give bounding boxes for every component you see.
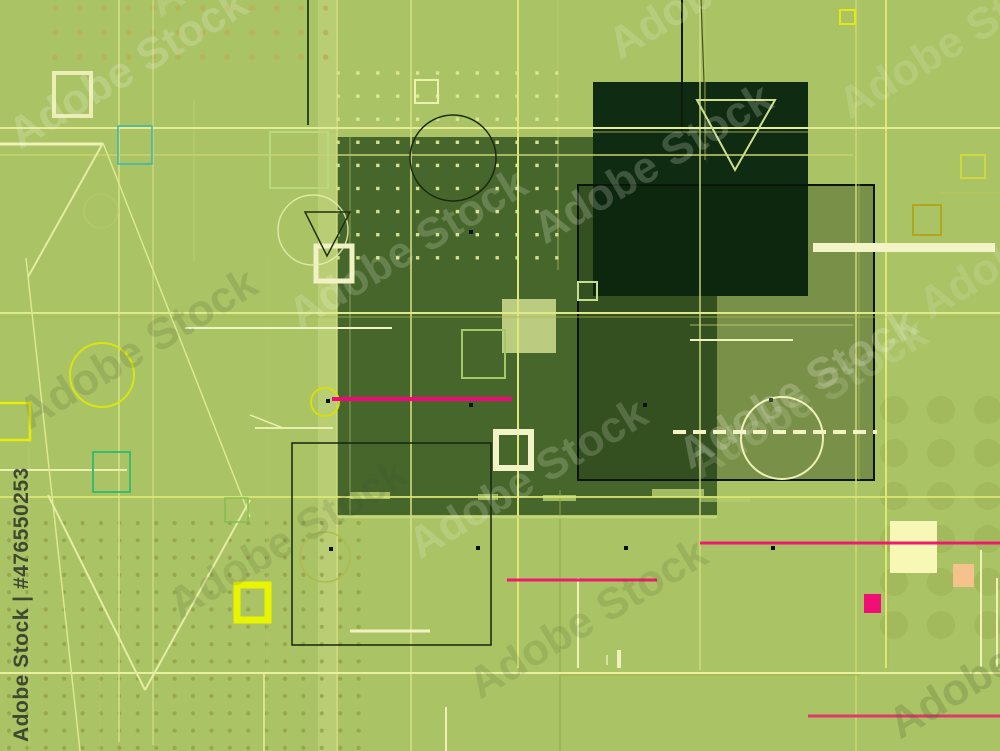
bead-grid-bottom-left-dot (246, 607, 250, 611)
bead-grid-top-left-dot (101, 30, 107, 36)
adobe-stock-ghost-watermark: Adobe Stock (10, 258, 266, 439)
bead-grid-bottom-left-dot (209, 746, 213, 750)
fine-dot-grid-dot (376, 164, 379, 167)
bead-grid-bottom-left-dot (81, 659, 85, 663)
faint-blob-grid-dot (880, 439, 908, 467)
bead-grid-bottom-left-dot (154, 677, 158, 681)
spring-green-square (93, 452, 130, 492)
bead-grid-bottom-left-dot (173, 677, 177, 681)
bead-grid-bottom-left-dot (320, 625, 324, 629)
bead-grid-bottom-left-dot (191, 694, 195, 698)
bead-grid-bottom-left-dot (81, 556, 85, 560)
bead-grid-bottom-left-dot (283, 590, 287, 594)
bead-grid-bottom-left-dot (191, 642, 195, 646)
fine-dot-grid-dot (476, 71, 479, 74)
bead-grid-bottom-left-dot (283, 677, 287, 681)
black-dot (326, 399, 330, 403)
bead-grid-bottom-left-dot (228, 729, 232, 733)
faint-blob-grid-dot (974, 525, 1000, 553)
bead-grid-bottom-left-dot (99, 573, 103, 577)
fine-dot-grid-dot (535, 118, 538, 121)
bead-grid-top-left-dot (298, 5, 304, 11)
bead-grid-bottom-left-dot (81, 694, 85, 698)
bead-grid-bottom-left-dot (357, 711, 361, 715)
bead-grid-bottom-left-dot (154, 642, 158, 646)
bead-grid-bottom-left-dot (301, 694, 305, 698)
bead-grid-bottom-left-dot (7, 746, 11, 750)
bead-grid-bottom-left-dot (338, 556, 342, 560)
bead-grid-bottom-left-dot (154, 521, 158, 525)
bead-grid-bottom-left-dot (44, 521, 48, 525)
bead-grid-bottom-left-dot (154, 746, 158, 750)
bead-grid-bottom-left-dot (209, 538, 213, 542)
bead-grid-bottom-left-dot (357, 607, 361, 611)
bead-grid-bottom-left-dot (246, 729, 250, 733)
faint-blob-grid-dot (927, 482, 955, 510)
bead-grid-bottom-left-dot (44, 573, 48, 577)
bead-grid-top-left-dot (224, 54, 230, 60)
bead-grid-bottom-left-dot (357, 694, 361, 698)
olive-square-outline (913, 205, 941, 235)
pale-vertical-band (318, 0, 338, 751)
bead-grid-top-left-dot (274, 5, 280, 11)
yellowgreen-square-outline (961, 155, 985, 178)
adobe-stock-ghost-watermark: Adobe Stock (910, 148, 1000, 329)
bead-grid-bottom-left-dot (209, 625, 213, 629)
fine-dot-grid-dot (436, 164, 439, 167)
fine-dot-grid-dot (416, 71, 419, 74)
bead-grid-bottom-left-dot (246, 711, 250, 715)
bead-grid-bottom-left-dot (320, 711, 324, 715)
fine-dot-grid-dot (535, 141, 538, 144)
fine-dot-grid-dot (535, 71, 538, 74)
adobe-stock-ghost-watermark: Adobe Stock (460, 528, 716, 709)
fine-dot-grid-dot (456, 118, 459, 121)
bead-grid-bottom-left-dot (338, 590, 342, 594)
bead-grid-bottom-left-dot (136, 711, 140, 715)
bead-grid-bottom-left-dot (136, 556, 140, 560)
bead-grid-bottom-left-dot (320, 590, 324, 594)
bead-grid-bottom-left-dot (44, 659, 48, 663)
bead-grid-bottom-left-dot (173, 746, 177, 750)
bead-grid-bottom-left-dot (320, 694, 324, 698)
faint-blob-grid-dot (880, 482, 908, 510)
fine-dot-grid-dot (456, 164, 459, 167)
bead-grid-top-left-dot (52, 54, 58, 60)
fine-dot-grid-dot (356, 233, 359, 236)
bead-grid-bottom-left-dot (320, 573, 324, 577)
fine-dot-grid-dot (376, 118, 379, 121)
bead-grid-bottom-left-dot (246, 694, 250, 698)
bead-grid-bottom-left-dot (191, 521, 195, 525)
bead-grid-bottom-left-dot (246, 659, 250, 663)
bead-grid-bottom-left-dot (136, 538, 140, 542)
bead-grid-top-left-dot (200, 54, 206, 60)
fine-dot-grid-dot (416, 164, 419, 167)
bead-grid-top-left-dot (77, 5, 83, 11)
bead-grid-bottom-left-dot (62, 659, 66, 663)
triangle-left-side (28, 143, 103, 277)
fine-dot-grid-dot (476, 256, 479, 259)
faint-blob-grid-dot (927, 396, 955, 424)
bead-grid-bottom-left-dot (62, 677, 66, 681)
bead-grid-bottom-left-dot (246, 625, 250, 629)
bead-grid-bottom-left-dot (301, 590, 305, 594)
bead-grid-bottom-left-dot (191, 659, 195, 663)
fine-dot-grid-dot (416, 141, 419, 144)
bead-grid-bottom-left-dot (81, 538, 85, 542)
bead-grid-bottom-left-dot (136, 642, 140, 646)
bead-grid-bottom-left-dot (173, 729, 177, 733)
fine-dot-grid-dot (396, 94, 399, 97)
fine-dot-grid-dot (456, 71, 459, 74)
bead-grid-bottom-left-dot (136, 625, 140, 629)
black-dot (624, 546, 628, 550)
bead-grid-bottom-left-dot (62, 642, 66, 646)
bead-grid-bottom-left-dot (301, 607, 305, 611)
bead-grid-bottom-left-dot (228, 659, 232, 663)
bead-grid-bottom-left-dot (62, 711, 66, 715)
bead-grid-bottom-left-dot (136, 521, 140, 525)
bead-grid-bottom-left-dot (209, 729, 213, 733)
bead-grid-bottom-left-dot (44, 642, 48, 646)
bead-grid-top-left-dot (77, 30, 83, 36)
cream-filled-square (890, 521, 937, 573)
bead-grid-bottom-left-dot (228, 625, 232, 629)
bead-grid-top-left-dot (249, 5, 255, 11)
fine-dot-grid-dot (356, 210, 359, 213)
peach-square (953, 564, 974, 587)
bead-grid-bottom-left-dot (209, 521, 213, 525)
bead-grid-bottom-left-dot (265, 746, 269, 750)
bead-grid-bottom-left-dot (320, 746, 324, 750)
adobe-stock-ghost-watermark: Adobe Stock (600, 0, 856, 69)
smudge (652, 489, 704, 497)
fine-dot-grid-dot (356, 164, 359, 167)
black-dot (476, 546, 480, 550)
bead-grid-bottom-left-dot (44, 677, 48, 681)
fine-dot-grid-dot (396, 187, 399, 190)
fine-dot-grid-dot (476, 164, 479, 167)
fine-dot-grid-dot (376, 94, 379, 97)
bead-grid-bottom-left-dot (44, 711, 48, 715)
bead-grid-bottom-left-dot (99, 590, 103, 594)
bead-grid-bottom-left-dot (117, 746, 121, 750)
bead-grid-top-left-dot (298, 30, 304, 36)
bead-grid-bottom-left-dot (338, 729, 342, 733)
bead-grid-bottom-left-dot (301, 746, 305, 750)
fine-dot-grid-dot (496, 256, 499, 259)
bead-grid-bottom-left-dot (62, 538, 66, 542)
bead-grid-bottom-left-dot (154, 711, 158, 715)
faint-blob-grid-dot (927, 611, 955, 639)
bead-grid-bottom-left-dot (338, 625, 342, 629)
bead-grid-bottom-left-dot (301, 729, 305, 733)
faint-blob-grid-dot (974, 482, 1000, 510)
bead-grid-top-left-dot (249, 54, 255, 60)
fine-dot-grid-dot (496, 141, 499, 144)
bead-grid-bottom-left-dot (173, 642, 177, 646)
faint-blob-grid-dot (974, 439, 1000, 467)
fine-dot-grid-dot (396, 164, 399, 167)
bead-grid-bottom-left-dot (62, 573, 66, 577)
bead-grid-top-left-dot (323, 5, 329, 11)
fine-dot-grid-dot (376, 233, 379, 236)
bead-grid-bottom-left-dot (81, 521, 85, 525)
bead-grid-bottom-left-dot (62, 694, 66, 698)
bead-grid-bottom-left-dot (44, 590, 48, 594)
fine-dot-grid-dot (396, 210, 399, 213)
fine-dot-grid-dot (535, 187, 538, 190)
bead-grid-bottom-left-dot (191, 746, 195, 750)
bead-grid-top-left-dot (126, 30, 132, 36)
abstract-geometric-art: Adobe StockAdobe StockAdobe StockAdobe S… (0, 0, 1000, 751)
fine-dot-grid-dot (535, 94, 538, 97)
bead-grid-bottom-left-dot (99, 556, 103, 560)
bead-grid-bottom-left-dot (338, 711, 342, 715)
bead-grid-bottom-left-dot (246, 746, 250, 750)
bead-grid-bottom-left-dot (228, 711, 232, 715)
bead-grid-bottom-left-dot (283, 746, 287, 750)
fine-dot-grid-dot (376, 141, 379, 144)
black-dot (771, 546, 775, 550)
bead-grid-bottom-left-dot (228, 677, 232, 681)
fine-dot-grid-dot (376, 187, 379, 190)
bead-grid-bottom-left-dot (357, 538, 361, 542)
bead-grid-bottom-left-dot (173, 538, 177, 542)
bead-grid-bottom-left-dot (283, 573, 287, 577)
bead-grid-top-left-dot (77, 54, 83, 60)
bead-grid-bottom-left-dot (209, 677, 213, 681)
bead-grid-bottom-left-dot (62, 746, 66, 750)
bead-grid-bottom-left-dot (357, 746, 361, 750)
yellow-square-outline-topright (840, 10, 855, 24)
bead-grid-bottom-left-dot (357, 556, 361, 560)
bead-grid-bottom-left-dot (283, 694, 287, 698)
fine-dot-grid-dot (436, 141, 439, 144)
bead-grid-bottom-left-dot (357, 625, 361, 629)
bead-grid-bottom-left-dot (228, 607, 232, 611)
bead-grid-bottom-left-dot (62, 729, 66, 733)
bead-grid-bottom-left-dot (338, 677, 342, 681)
bead-grid-bottom-left-dot (283, 729, 287, 733)
bead-grid-bottom-left-dot (136, 746, 140, 750)
bead-grid-top-left-dot (126, 5, 132, 11)
faint-blob-grid-dot (880, 611, 908, 639)
bead-grid-bottom-left-dot (209, 642, 213, 646)
cream-bar (813, 243, 995, 252)
bead-grid-bottom-left-dot (136, 659, 140, 663)
bead-grid-bottom-left-dot (246, 677, 250, 681)
fine-dot-grid-dot (376, 210, 379, 213)
fine-dot-grid-dot (356, 71, 359, 74)
fine-dot-grid-dot (496, 71, 499, 74)
fine-dot-grid-dot (416, 94, 419, 97)
pale-translucent-square (502, 299, 556, 353)
bead-grid-bottom-left-dot (357, 590, 361, 594)
bead-grid-bottom-left-dot (357, 729, 361, 733)
bead-grid-bottom-left-dot (320, 607, 324, 611)
bead-grid-bottom-left-dot (136, 607, 140, 611)
bead-grid-bottom-left-dot (81, 625, 85, 629)
black-dot (469, 403, 473, 407)
bead-grid-bottom-left-dot (136, 694, 140, 698)
fine-dot-grid-dot (356, 187, 359, 190)
fine-dot-grid-dot (496, 118, 499, 121)
fine-dot-grid-dot (436, 187, 439, 190)
bead-grid-bottom-left-dot (191, 711, 195, 715)
bead-grid-bottom-left-dot (338, 607, 342, 611)
artwork-canvas: Adobe StockAdobe StockAdobe StockAdobe S… (0, 0, 1000, 751)
bead-grid-bottom-left-dot (191, 538, 195, 542)
magenta-square (864, 594, 881, 613)
bead-grid-bottom-left-dot (301, 677, 305, 681)
bead-grid-bottom-left-dot (357, 659, 361, 663)
bead-grid-bottom-left-dot (283, 625, 287, 629)
fine-dot-grid-dot (356, 94, 359, 97)
bead-grid-bottom-left-dot (338, 746, 342, 750)
faint-circle (84, 194, 118, 228)
bead-grid-top-left-dot (52, 5, 58, 11)
bead-grid-top-left-dot (298, 54, 304, 60)
fine-dot-grid-dot (376, 71, 379, 74)
bead-grid-bottom-left-dot (154, 573, 158, 577)
fine-dot-grid-dot (416, 118, 419, 121)
bead-grid-bottom-left-dot (44, 538, 48, 542)
bead-grid-top-left-dot (323, 54, 329, 60)
bead-grid-bottom-left-dot (154, 590, 158, 594)
bead-grid-bottom-left-dot (320, 677, 324, 681)
bead-grid-bottom-left-dot (44, 556, 48, 560)
fine-dot-grid-dot (496, 94, 499, 97)
fine-dot-grid-dot (456, 94, 459, 97)
fine-dot-grid-dot (535, 164, 538, 167)
bead-grid-bottom-left-dot (209, 659, 213, 663)
bead-grid-bottom-left-dot (320, 659, 324, 663)
fine-dot-grid-dot (356, 141, 359, 144)
bead-grid-bottom-left-dot (173, 711, 177, 715)
bead-grid-bottom-left-dot (81, 607, 85, 611)
bead-grid-bottom-left-dot (44, 625, 48, 629)
bead-grid-bottom-left-dot (173, 659, 177, 663)
fine-dot-grid-dot (476, 118, 479, 121)
bead-grid-bottom-left-dot (136, 590, 140, 594)
bead-grid-bottom-left-dot (81, 711, 85, 715)
fine-dot-grid-dot (396, 141, 399, 144)
bead-grid-bottom-left-dot (81, 677, 85, 681)
bead-grid-bottom-left-dot (301, 573, 305, 577)
bead-grid-bottom-left-dot (81, 746, 85, 750)
bead-grid-bottom-left-dot (301, 659, 305, 663)
bead-grid-bottom-left-dot (301, 711, 305, 715)
fine-dot-grid-dot (476, 141, 479, 144)
bead-grid-bottom-left-dot (320, 729, 324, 733)
fine-dot-grid-dot (416, 187, 419, 190)
bead-grid-bottom-left-dot (154, 694, 158, 698)
bead-grid-bottom-left-dot (99, 521, 103, 525)
bead-grid-bottom-left-dot (136, 729, 140, 733)
bead-grid-bottom-left-dot (283, 642, 287, 646)
bead-grid-bottom-left-dot (338, 694, 342, 698)
black-dot (643, 403, 647, 407)
bead-grid-bottom-left-dot (136, 573, 140, 577)
bead-grid-bottom-left-dot (154, 556, 158, 560)
bead-grid-bottom-left-dot (44, 746, 48, 750)
bead-grid-top-left-dot (274, 30, 280, 36)
bead-grid-bottom-left-dot (62, 556, 66, 560)
bead-grid-top-left-dot (323, 30, 329, 36)
bead-grid-bottom-left-dot (173, 521, 177, 525)
bead-grid-bottom-left-dot (44, 729, 48, 733)
faint-blob-grid-dot (974, 396, 1000, 424)
bead-grid-bottom-left-dot (283, 711, 287, 715)
bead-grid-bottom-left-dot (228, 642, 232, 646)
bead-grid-bottom-left-dot (99, 538, 103, 542)
bead-grid-bottom-left-dot (173, 625, 177, 629)
bead-grid-bottom-left-dot (357, 677, 361, 681)
bead-grid-bottom-left-dot (283, 607, 287, 611)
fine-dot-grid-dot (535, 256, 538, 259)
fine-dot-grid-dot (436, 71, 439, 74)
bead-grid-bottom-left-dot (301, 625, 305, 629)
bead-grid-bottom-left-dot (154, 659, 158, 663)
fine-dot-grid-dot (396, 71, 399, 74)
faint-blob-grid-dot (880, 396, 908, 424)
bead-grid-bottom-left-dot (228, 694, 232, 698)
bead-grid-bottom-left-dot (81, 729, 85, 733)
bead-grid-bottom-left-dot (338, 659, 342, 663)
bead-grid-bottom-left-dot (191, 625, 195, 629)
fine-dot-grid-dot (396, 118, 399, 121)
bead-grid-bottom-left-dot (44, 607, 48, 611)
bead-grid-bottom-left-dot (191, 677, 195, 681)
bead-grid-bottom-left-dot (154, 625, 158, 629)
bead-grid-bottom-left-dot (44, 694, 48, 698)
pale-square-outline (415, 80, 438, 103)
bead-grid-bottom-left-dot (191, 556, 195, 560)
fine-dot-grid-dot (496, 233, 499, 236)
bead-grid-bottom-left-dot (283, 659, 287, 663)
bead-grid-bottom-left-dot (81, 590, 85, 594)
bead-grid-bottom-left-dot (246, 642, 250, 646)
faint-blob-grid-dot (927, 439, 955, 467)
bead-grid-bottom-left-dot (209, 711, 213, 715)
bead-grid-bottom-left-dot (81, 573, 85, 577)
bead-grid-bottom-left-dot (154, 538, 158, 542)
bead-grid-bottom-left-dot (228, 746, 232, 750)
stock-id-watermark: Adobe Stock | #476550253 (10, 497, 34, 742)
bead-grid-bottom-left-dot (209, 694, 213, 698)
fine-dot-grid-dot (456, 141, 459, 144)
bead-grid-bottom-left-dot (154, 607, 158, 611)
fine-dot-grid-dot (456, 256, 459, 259)
bead-grid-bottom-left-dot (99, 607, 103, 611)
bead-grid-top-left-dot (274, 54, 280, 60)
fine-dot-grid-dot (476, 94, 479, 97)
bead-grid-top-left-dot (101, 5, 107, 11)
bead-grid-bottom-left-dot (173, 556, 177, 560)
bead-grid-top-left-dot (52, 30, 58, 36)
bead-grid-bottom-left-dot (191, 729, 195, 733)
bead-grid-top-left-dot (249, 30, 255, 36)
bead-grid-bottom-left-dot (173, 694, 177, 698)
bead-grid-bottom-left-dot (154, 729, 158, 733)
bead-grid-bottom-left-dot (81, 642, 85, 646)
bead-grid-bottom-left-dot (357, 573, 361, 577)
black-dot (329, 547, 333, 551)
adobe-stock-ghost-watermark: Adobe Stock (160, 448, 416, 629)
bead-grid-bottom-left-dot (320, 556, 324, 560)
